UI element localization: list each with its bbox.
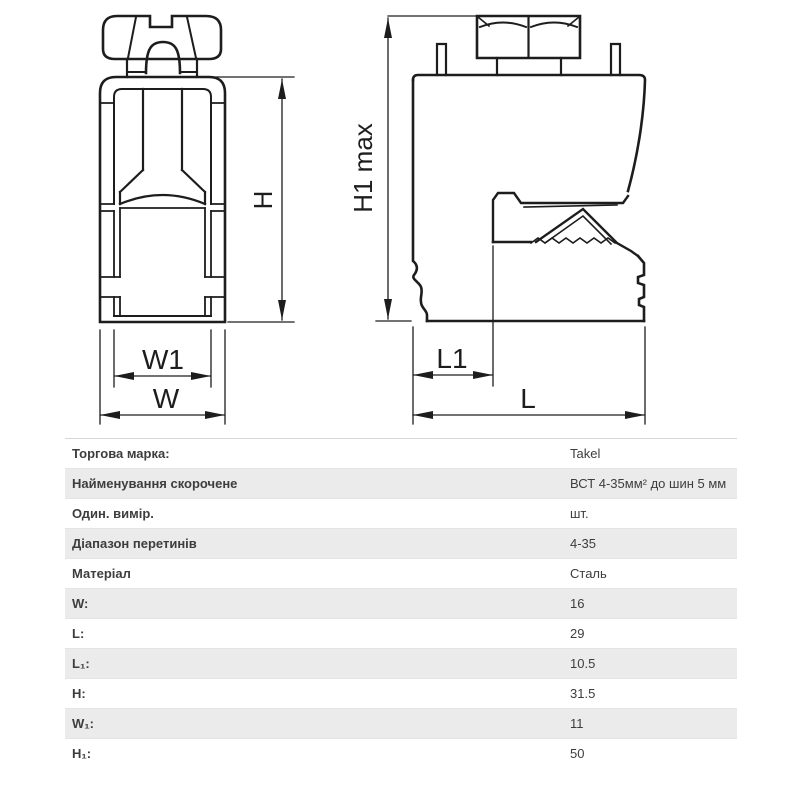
spec-value: шт. xyxy=(570,499,737,529)
spec-row-material: Матеріал Сталь xyxy=(65,559,737,589)
clamp-jaw xyxy=(493,193,638,256)
arrowhead-left xyxy=(413,371,433,379)
jaw-flange-inner-line xyxy=(524,205,617,207)
body-left-edge xyxy=(413,80,427,321)
arrowhead-left xyxy=(100,411,120,419)
spec-value: Сталь xyxy=(570,559,737,589)
spec-label: Один. вимір. xyxy=(65,499,570,529)
screw-neck xyxy=(127,59,197,77)
spec-row-h1: H₁: 50 xyxy=(65,739,737,769)
arrowhead-up xyxy=(278,79,286,99)
hex-nut xyxy=(477,16,580,58)
body-inner-strap xyxy=(114,89,211,204)
spring-zigzag xyxy=(531,238,615,243)
technical-drawing: H W1 W xyxy=(0,0,800,436)
spec-value: 29 xyxy=(570,619,737,649)
clamp-plate-outer xyxy=(536,209,638,256)
arrowhead-right xyxy=(625,411,645,419)
dim-l1-lines xyxy=(413,246,493,424)
arrowhead-right xyxy=(205,411,225,419)
dim-w1-label: W1 xyxy=(142,344,184,375)
arrowhead-left xyxy=(413,411,433,419)
spec-row-l: L: 29 xyxy=(65,619,737,649)
wing-screw-outline xyxy=(103,16,221,59)
spec-row-short-name: Найменування скорочене ВСТ 4-35мм² до ши… xyxy=(65,469,737,499)
spec-row-l1: L₁: 10.5 xyxy=(65,649,737,679)
spec-label: L: xyxy=(65,619,570,649)
spec-label: Торгова марка: xyxy=(65,439,570,469)
wing-fold-lines xyxy=(128,17,196,58)
arrowhead-down xyxy=(384,299,392,319)
spec-label: H₁: xyxy=(65,739,570,769)
spec-label: W₁: xyxy=(65,709,570,739)
spec-label: H: xyxy=(65,679,570,709)
spec-value: 16 xyxy=(570,589,737,619)
dim-l-label: L xyxy=(520,383,536,414)
body-right-lower-edge xyxy=(638,256,644,321)
screw-shank xyxy=(497,58,561,75)
spec-row-brand: Торгова марка: Takel xyxy=(65,439,737,469)
spec-label: W: xyxy=(65,589,570,619)
clamp-body-front xyxy=(100,77,225,322)
spec-label: Діапазон перетинів xyxy=(65,529,570,559)
leg-inner-lines xyxy=(114,208,211,316)
spec-value: 11 xyxy=(570,709,737,739)
spec-value: ВСТ 4-35мм² до шин 5 мм xyxy=(570,469,737,499)
spec-table: Торгова марка: Takel Найменування скороч… xyxy=(65,438,737,768)
front-view: H W1 W xyxy=(100,16,294,424)
spec-value: 4-35 xyxy=(570,529,737,559)
arrowhead-right xyxy=(473,371,493,379)
arrowhead-left xyxy=(114,372,134,380)
spec-label: Матеріал xyxy=(65,559,570,589)
saddle-arc xyxy=(120,195,205,204)
dim-h-label: H xyxy=(248,191,278,210)
leg-notches xyxy=(100,277,225,297)
spec-label: L₁: xyxy=(65,649,570,679)
screw-dome xyxy=(146,42,180,73)
clamp-body-side xyxy=(413,75,645,321)
spec-row-w1: W₁: 11 xyxy=(65,709,737,739)
spec-value: 31.5 xyxy=(570,679,737,709)
wing-screw xyxy=(103,16,221,77)
dimension-l1: L1 xyxy=(413,246,493,424)
spec-value: Takel xyxy=(570,439,737,469)
dimension-w1: W1 xyxy=(114,330,211,387)
side-view: H1 max L1 L xyxy=(348,16,645,424)
spec-row-h: H: 31.5 xyxy=(65,679,737,709)
spec-row-cross-section-range: Діапазон перетинів 4-35 xyxy=(65,529,737,559)
arrowhead-up xyxy=(384,18,392,38)
body-outer-outline xyxy=(100,77,225,322)
body-top-right-outline xyxy=(413,75,645,191)
dim-l1-label: L1 xyxy=(436,343,467,374)
spec-row-w: W: 16 xyxy=(65,589,737,619)
spec-label: Найменування скорочене xyxy=(65,469,570,499)
dim-h1-lines xyxy=(376,16,477,321)
inner-funnel xyxy=(120,89,205,204)
dim-h1-label: H1 max xyxy=(348,123,378,213)
spec-row-unit: Один. вимір. шт. xyxy=(65,499,737,529)
spec-value: 50 xyxy=(570,739,737,769)
arrowhead-right xyxy=(191,372,211,380)
spec-value: 10.5 xyxy=(570,649,737,679)
product-spec-page: H W1 W xyxy=(0,0,800,800)
dim-w-label: W xyxy=(153,383,180,414)
arrowhead-down xyxy=(278,300,286,320)
